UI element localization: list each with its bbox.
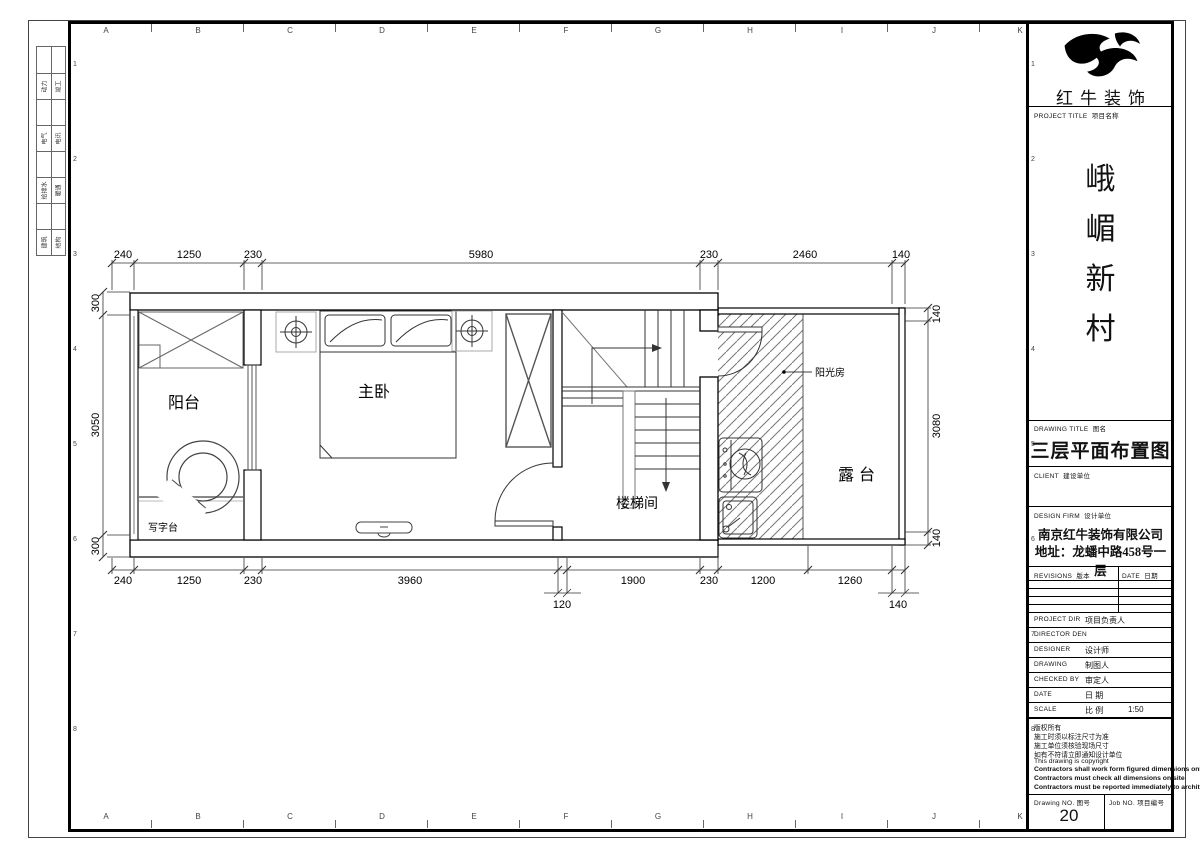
field-value-cn: 制图人: [1085, 660, 1109, 671]
drawing-title-label: DRAWING TITLE 图名: [1034, 423, 1106, 433]
room-label-stairwell: 楼梯间: [616, 495, 658, 511]
terrace-wall-bottom: [718, 539, 905, 545]
field-value-cn: 设计师: [1085, 645, 1109, 656]
dim-bottom: 230: [244, 575, 262, 587]
revisions-divider: [1118, 566, 1119, 612]
dim-left: 300: [90, 294, 102, 312]
project-title-label: PROJECT TITLE 项目名称: [1034, 110, 1119, 120]
scale-value: 1:50: [1128, 705, 1144, 714]
partition-stair: [553, 310, 562, 467]
drawing-sheet: { "sheet": { "top_ruler_letters": ["A","…: [0, 0, 1200, 844]
field-label: SCALE: [1034, 706, 1057, 713]
dim-right: 140: [931, 305, 943, 323]
field-label: CHECKED BY: [1034, 676, 1079, 683]
field-value-cn: 比 例: [1085, 705, 1103, 716]
dim-bottom-offset: 120: [553, 599, 571, 611]
dim-bottom: 1250: [177, 575, 201, 587]
client-label: CLIENT 建设单位: [1034, 470, 1090, 480]
field-label: DRAWING: [1034, 661, 1067, 668]
project-name: 峨 嵋 新 村: [1029, 155, 1172, 355]
dim-bottom: 1900: [621, 575, 645, 587]
copyright-note: Contractors must check all dimensions on…: [1034, 775, 1185, 782]
dim-top: 240: [114, 249, 132, 261]
dim-left: 3050: [90, 413, 102, 437]
field-label: DIRECTOR DEN: [1034, 631, 1087, 638]
sunroom-leader-dot: [782, 370, 786, 374]
date-column-label: DATE 日期: [1122, 570, 1158, 580]
partition-stair-stub: [553, 527, 562, 540]
partition-balcony-lower: [244, 470, 261, 540]
redbull-logo-icon: [1056, 30, 1146, 82]
field-label: DESIGNER: [1034, 646, 1070, 653]
dim-top: 230: [244, 249, 262, 261]
dim-bottom: 1260: [838, 575, 862, 587]
floor-plan: 阳台 主卧 楼梯间 写字台 露台 阳光房 240 1250 230 5980 2…: [0, 0, 1200, 844]
wall-top: [130, 293, 718, 310]
dim-bottom: 3960: [398, 575, 422, 587]
dim-left: 300: [90, 537, 102, 555]
dim-bottom-offset: 140: [889, 599, 907, 611]
dim-top: 230: [700, 249, 718, 261]
room-label-desk: 写字台: [148, 521, 178, 534]
room-label-sunroom: 阳光房: [815, 366, 845, 379]
design-firm-label: DESIGN FIRM 设计单位: [1034, 510, 1111, 520]
job-no-label: Job NO. 项目编号: [1109, 797, 1164, 807]
revisions-label: REVISIONS 版本: [1034, 570, 1090, 580]
dim-bottom: 1200: [751, 575, 775, 587]
copyright-note: Contractors shall work form figured dime…: [1034, 766, 1200, 773]
drawing-no-value: 20: [1034, 806, 1104, 826]
dim-right: 3080: [931, 414, 943, 438]
field-value-cn: 审定人: [1085, 675, 1109, 686]
wall-right-lower: [700, 377, 718, 540]
terrace-wall-top: [718, 308, 905, 314]
wall-right-upper: [700, 310, 718, 331]
copyright-note: Contractors must be reported immediately…: [1034, 784, 1200, 791]
field-label: DATE: [1034, 691, 1052, 698]
dim-top: 140: [892, 249, 910, 261]
dim-bottom: 240: [114, 575, 132, 587]
dim-top: 5980: [469, 249, 493, 261]
room-label-master-bedroom: 主卧: [358, 383, 390, 401]
drawing-no-divider: [1104, 794, 1105, 830]
partition-balcony-upper: [244, 310, 261, 365]
field-label: PROJECT DIR: [1034, 616, 1081, 623]
drawing-title: 三层平面布置图: [1029, 436, 1172, 463]
field-value-cn: 项目负责人: [1085, 615, 1125, 626]
room-label-balcony: 阳台: [168, 394, 200, 412]
room-label-terrace: 露台: [838, 466, 880, 484]
dim-top: 2460: [793, 249, 817, 261]
wall-bottom: [130, 540, 718, 557]
terrace-wall-right: [899, 308, 905, 545]
dim-bottom: 230: [700, 575, 718, 587]
field-value-cn: 日 期: [1085, 690, 1103, 701]
dim-top: 1250: [177, 249, 201, 261]
copyright-note: This drawing is copyright: [1034, 758, 1109, 765]
dim-right: 140: [931, 529, 943, 547]
